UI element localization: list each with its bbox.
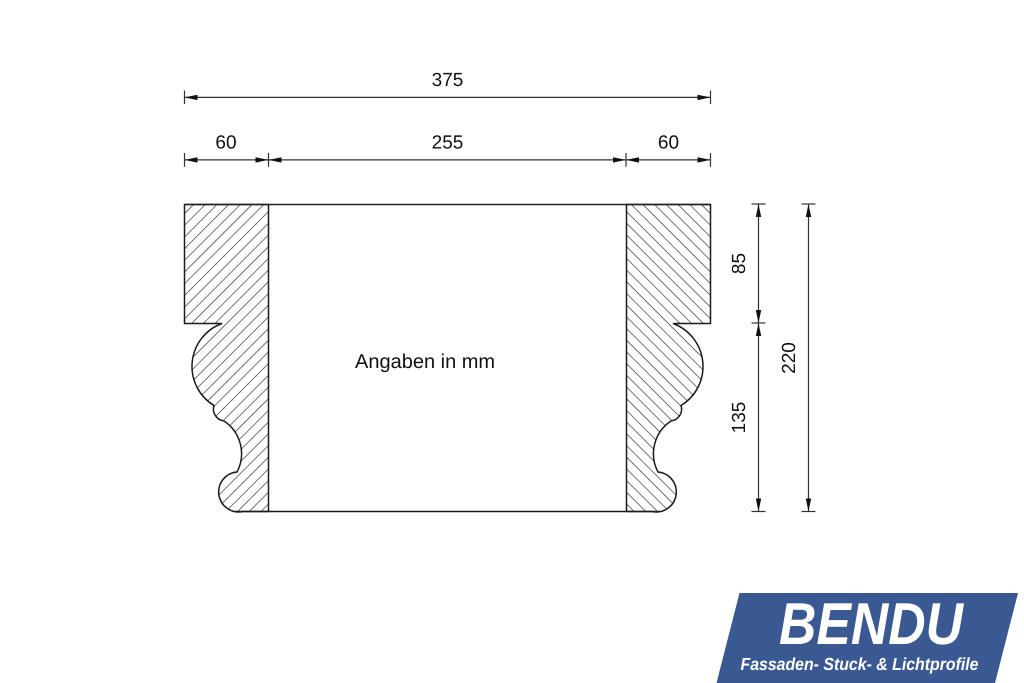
svg-text:255: 255 <box>432 133 464 154</box>
svg-text:60: 60 <box>658 133 679 154</box>
svg-text:BENDU: BENDU <box>779 591 964 657</box>
svg-text:135: 135 <box>729 402 750 434</box>
svg-text:Fassaden- Stuck- & Lichtprofil: Fassaden- Stuck- & Lichtprofile <box>741 654 979 674</box>
svg-text:375: 375 <box>432 70 464 91</box>
svg-text:Angaben in mm: Angaben in mm <box>355 351 495 373</box>
svg-text:220: 220 <box>779 342 800 374</box>
svg-text:60: 60 <box>215 133 236 154</box>
svg-text:85: 85 <box>729 253 750 274</box>
